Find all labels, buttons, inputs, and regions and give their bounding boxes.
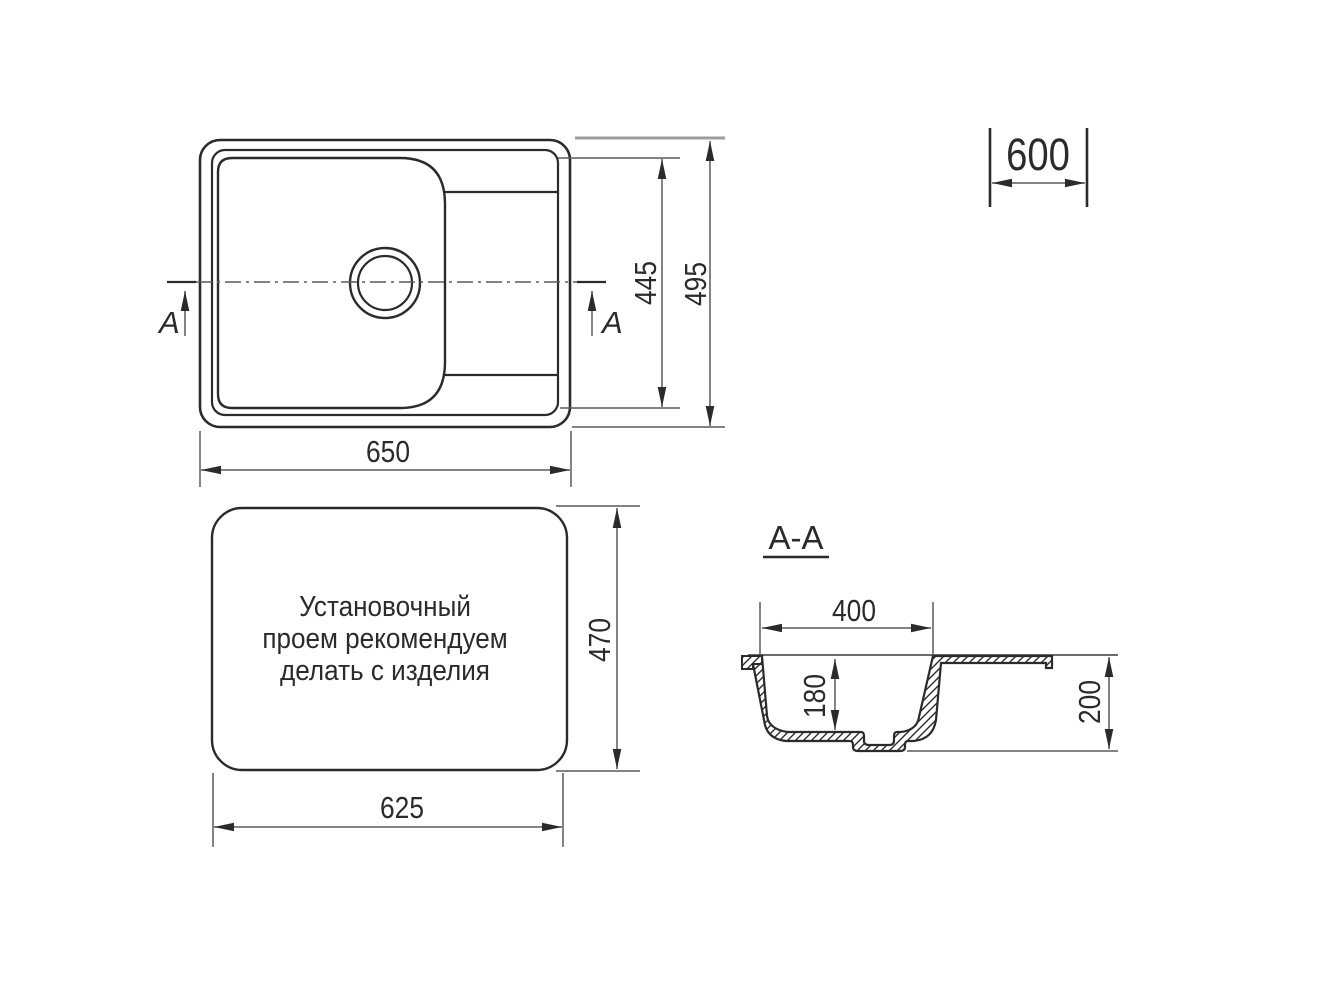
dimension-180: 180 [798,659,835,730]
drain-outer-circle [350,248,420,318]
dim-value-600: 600 [1006,129,1070,180]
dim-value-400: 400 [832,594,876,628]
section-marker-left: A [157,282,196,340]
cutout-view: Установочный проем рекомендуем делать с … [212,506,640,847]
dim-value-625: 625 [380,791,424,825]
note-line-1: Установочный [299,590,471,623]
section-label-left: A [157,305,180,340]
sink-outer-outline [200,140,570,427]
dim-value-200: 200 [1073,680,1107,724]
dim-value-445: 445 [629,261,663,305]
section-marker-right: A [577,282,623,340]
dimension-650: 650 [200,431,571,487]
section-view: A-A 400 180 [742,519,1118,751]
cutout-note: Установочный проем рекомендуем делать с … [262,590,507,687]
dim-value-470: 470 [583,618,617,662]
cabinet-width-dimension: 600 [990,128,1087,207]
section-label-right: A [600,305,623,340]
note-line-3: делать с изделия [280,654,490,687]
sink-cross-section [742,656,1052,751]
dim-value-495: 495 [679,262,713,306]
section-title-text: A-A [768,519,823,556]
section-title: A-A [763,519,829,557]
dimension-625: 625 [213,773,563,847]
dimension-400: 400 [760,594,933,655]
dimension-445: 445 [558,158,680,408]
dim-value-650: 650 [366,435,410,469]
dimension-470: 470 [556,506,640,771]
technical-drawing-page: A A 650 445 [0,0,1330,1000]
sink-dimension-drawing: A A 650 445 [0,0,1330,1000]
plan-view: A A 650 445 [157,138,725,487]
note-line-2: проем рекомендуем [262,622,507,655]
drain-inner-circle [358,256,412,310]
dim-value-180: 180 [798,674,832,718]
